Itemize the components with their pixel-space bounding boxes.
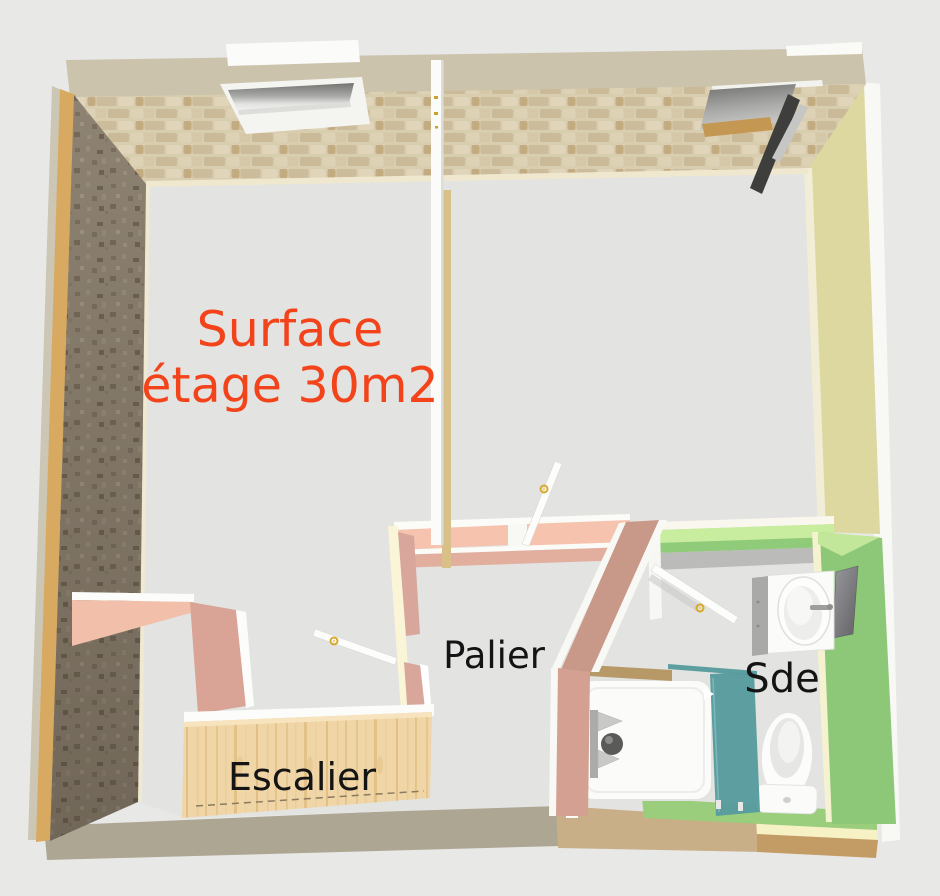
flue-bracket <box>434 96 438 99</box>
skylight-closed[interactable] <box>220 40 370 134</box>
label-surface-line1: Surface <box>197 301 384 358</box>
shower-head-highlight <box>605 736 613 744</box>
shower-door-hinge <box>716 800 721 809</box>
door-handle-dot <box>543 488 545 490</box>
flue-pipe-shade <box>441 60 444 545</box>
flue-bracket <box>434 112 438 115</box>
faucet <box>810 605 830 610</box>
label-escalier: Escalier <box>228 755 376 799</box>
floor-plan-3d-viewport[interactable]: Surface étage 30m2 Palier Escalier Sde <box>0 0 940 896</box>
washbasin[interactable] <box>752 571 834 656</box>
toilet-flush-button <box>783 797 791 803</box>
floor-plan-svg: Surface étage 30m2 Palier Escalier Sde <box>0 0 940 896</box>
flue-bracket <box>435 126 438 129</box>
shower-column <box>590 710 598 778</box>
shower-tray <box>578 680 712 800</box>
label-sde: Sde <box>744 656 819 702</box>
shower-door-hinge <box>738 802 743 811</box>
shower-head <box>601 733 623 755</box>
shower[interactable] <box>566 664 760 818</box>
washbasin-side-panel <box>752 576 768 656</box>
faucet-knob <box>827 604 833 610</box>
skylight-closed-outer <box>226 40 360 66</box>
washbasin-panel-knob <box>757 625 760 628</box>
label-surface-line2: étage 30m2 <box>141 357 438 414</box>
label-palier: Palier <box>443 634 546 677</box>
door-handle-dot <box>333 640 335 642</box>
door-handle-dot <box>699 607 701 609</box>
palier-east-wall-lower <box>556 668 590 816</box>
washbasin-panel-knob <box>757 601 760 604</box>
